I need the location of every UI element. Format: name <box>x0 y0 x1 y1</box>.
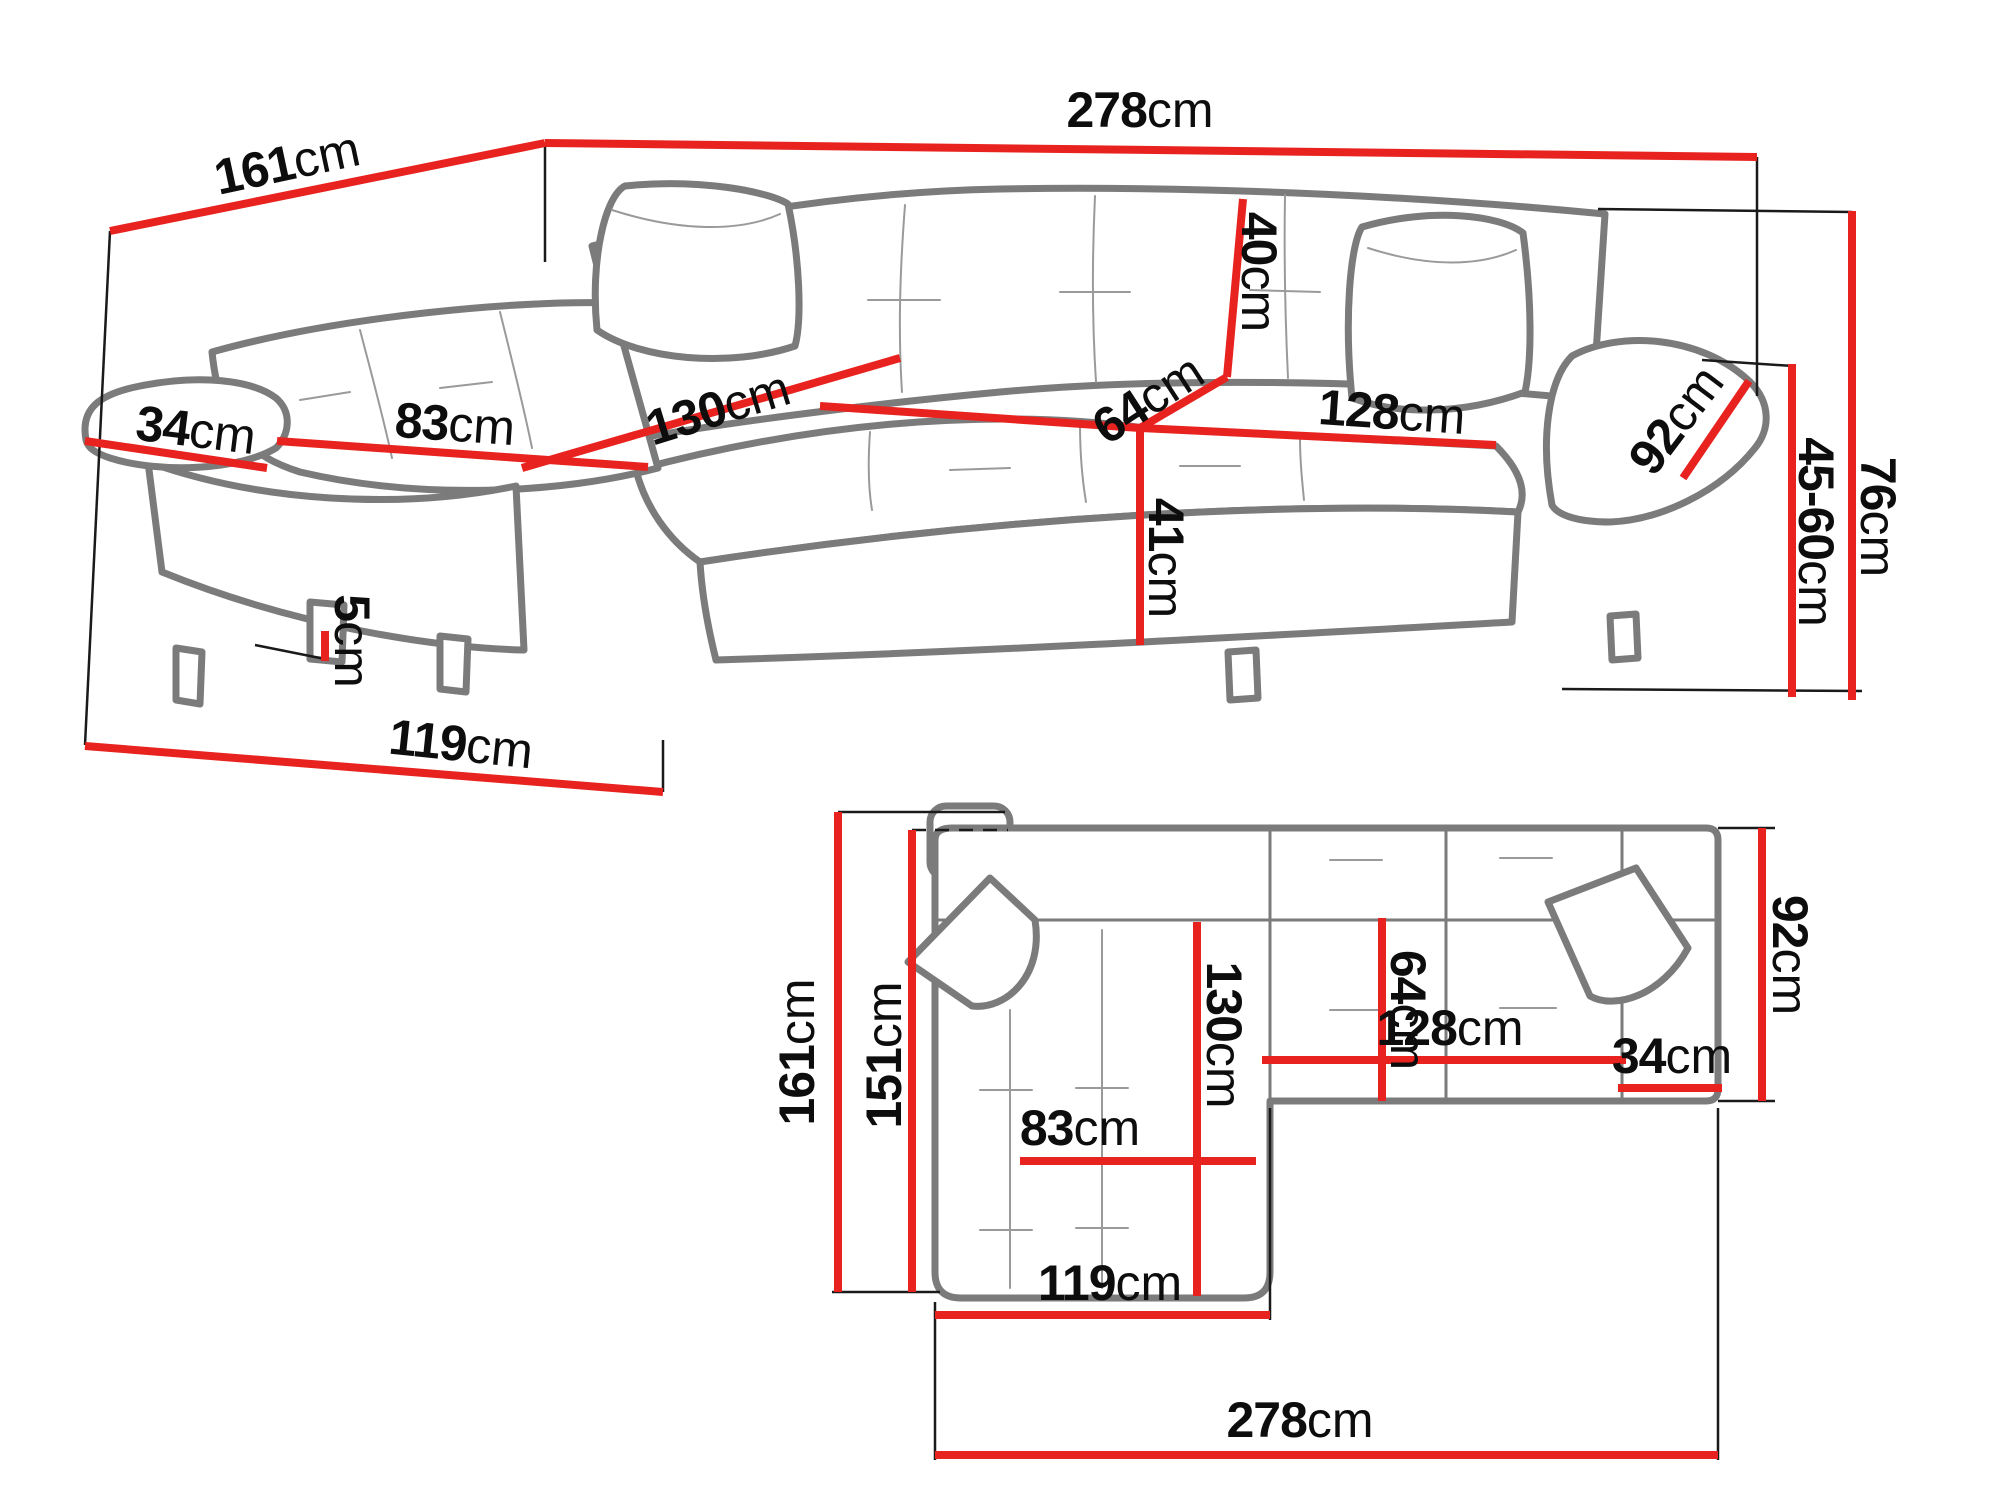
dim-value: 5 <box>324 594 380 621</box>
dim-unit: cm <box>1397 385 1467 446</box>
dim-unit: cm <box>1138 551 1194 618</box>
dim-value: 151 <box>856 1048 912 1128</box>
dim-value: 278 <box>1066 82 1146 138</box>
dim-value: 119 <box>1038 1255 1116 1311</box>
dim-value: 161 <box>769 1045 825 1125</box>
dim-value: 34 <box>133 395 193 457</box>
dim-value: 92 <box>1762 895 1818 949</box>
dim-unit: cm <box>1116 1255 1183 1311</box>
dim-unit: cm <box>1307 1392 1374 1448</box>
dim-value: 76 <box>1850 457 1906 511</box>
dim-value: 45-60 <box>1788 437 1844 560</box>
dim-unit: cm <box>324 621 380 688</box>
dim-value: 130 <box>1196 961 1252 1041</box>
dim-seat-height-41: 41cm <box>1141 498 1191 618</box>
perspective-view <box>85 143 1862 792</box>
dim-backrest-height-40: 40cm <box>1234 212 1284 332</box>
dim-unit: cm <box>1147 82 1214 138</box>
dim-value: 278 <box>1226 1392 1306 1448</box>
sofa-dimension-diagram: 278cm 161cm 34cm 83cm 130cm 40cm 64cm 12… <box>0 0 2000 1499</box>
dim-total-height-76: 76cm <box>1853 457 1903 577</box>
dim-unit: cm <box>1850 510 1906 577</box>
dim-value: 119 <box>386 709 469 773</box>
dim-value: 64 <box>1380 950 1436 1004</box>
dim-adjustable-height-45-60: 45-60cm <box>1791 437 1841 627</box>
plan-dim-chaise-width-119: 119cm <box>1038 1258 1182 1308</box>
dim-unit: cm <box>1788 560 1844 627</box>
dim-unit: cm <box>464 717 536 780</box>
dim-value: 128 <box>1317 379 1401 440</box>
plan-dim-seat-width-128: 128cm <box>1376 1003 1523 1053</box>
dim-unit: cm <box>1231 265 1287 332</box>
dim-unit: cm <box>1762 948 1818 1015</box>
plan-dim-chaise-length-130: 130cm <box>1199 961 1249 1108</box>
dim-unit: cm <box>1073 1100 1140 1156</box>
plan-dim-depth-151: 151cm <box>859 981 909 1128</box>
dimline-119 <box>85 746 663 792</box>
dim-value: 83 <box>1020 1100 1074 1156</box>
dim-value: 41 <box>1138 498 1194 552</box>
dim-unit: cm <box>447 396 517 457</box>
dimline-278-top <box>545 143 1757 157</box>
sofa-plan-drawing <box>908 806 1718 1298</box>
dim-top-width-278: 278cm <box>1066 85 1213 135</box>
dim-value: 34 <box>1612 1028 1666 1084</box>
dim-leg-height-5: 5cm <box>327 594 377 687</box>
plan-view <box>832 806 1775 1460</box>
dim-seat-width-128: 128cm <box>1317 382 1467 442</box>
dim-value: 40 <box>1231 212 1287 266</box>
plan-dim-depth-161: 161cm <box>772 978 822 1125</box>
plan-dim-total-width-278: 278cm <box>1226 1395 1373 1445</box>
dim-unit: cm <box>856 981 912 1048</box>
dim-unit: cm <box>1196 1042 1252 1109</box>
sofa-leg <box>440 636 468 692</box>
dim-unit: cm <box>1457 1000 1524 1056</box>
left-pillow <box>595 184 799 359</box>
plan-dim-side-depth-92: 92cm <box>1765 895 1815 1015</box>
diagram-canvas <box>0 0 2000 1499</box>
sofa-leg <box>1228 650 1258 700</box>
sofa-leg <box>176 648 202 704</box>
plan-dim-chaise-cushion-width-83: 83cm <box>1020 1103 1140 1153</box>
dim-armrest-width-34: 34cm <box>133 398 258 462</box>
dim-unit: cm <box>186 401 259 465</box>
dim-value: 128 <box>1376 1000 1456 1056</box>
plan-dim-armrest-width-34: 34cm <box>1612 1031 1732 1081</box>
dim-chaise-width-119: 119cm <box>387 712 536 777</box>
dim-unit: cm <box>769 978 825 1045</box>
dim-value: 83 <box>393 392 450 452</box>
right-pillow <box>1348 215 1530 410</box>
dim-unit: cm <box>1665 1028 1732 1084</box>
sofa-leg <box>1610 614 1638 660</box>
dim-chaise-cushion-width-83: 83cm <box>393 395 516 453</box>
